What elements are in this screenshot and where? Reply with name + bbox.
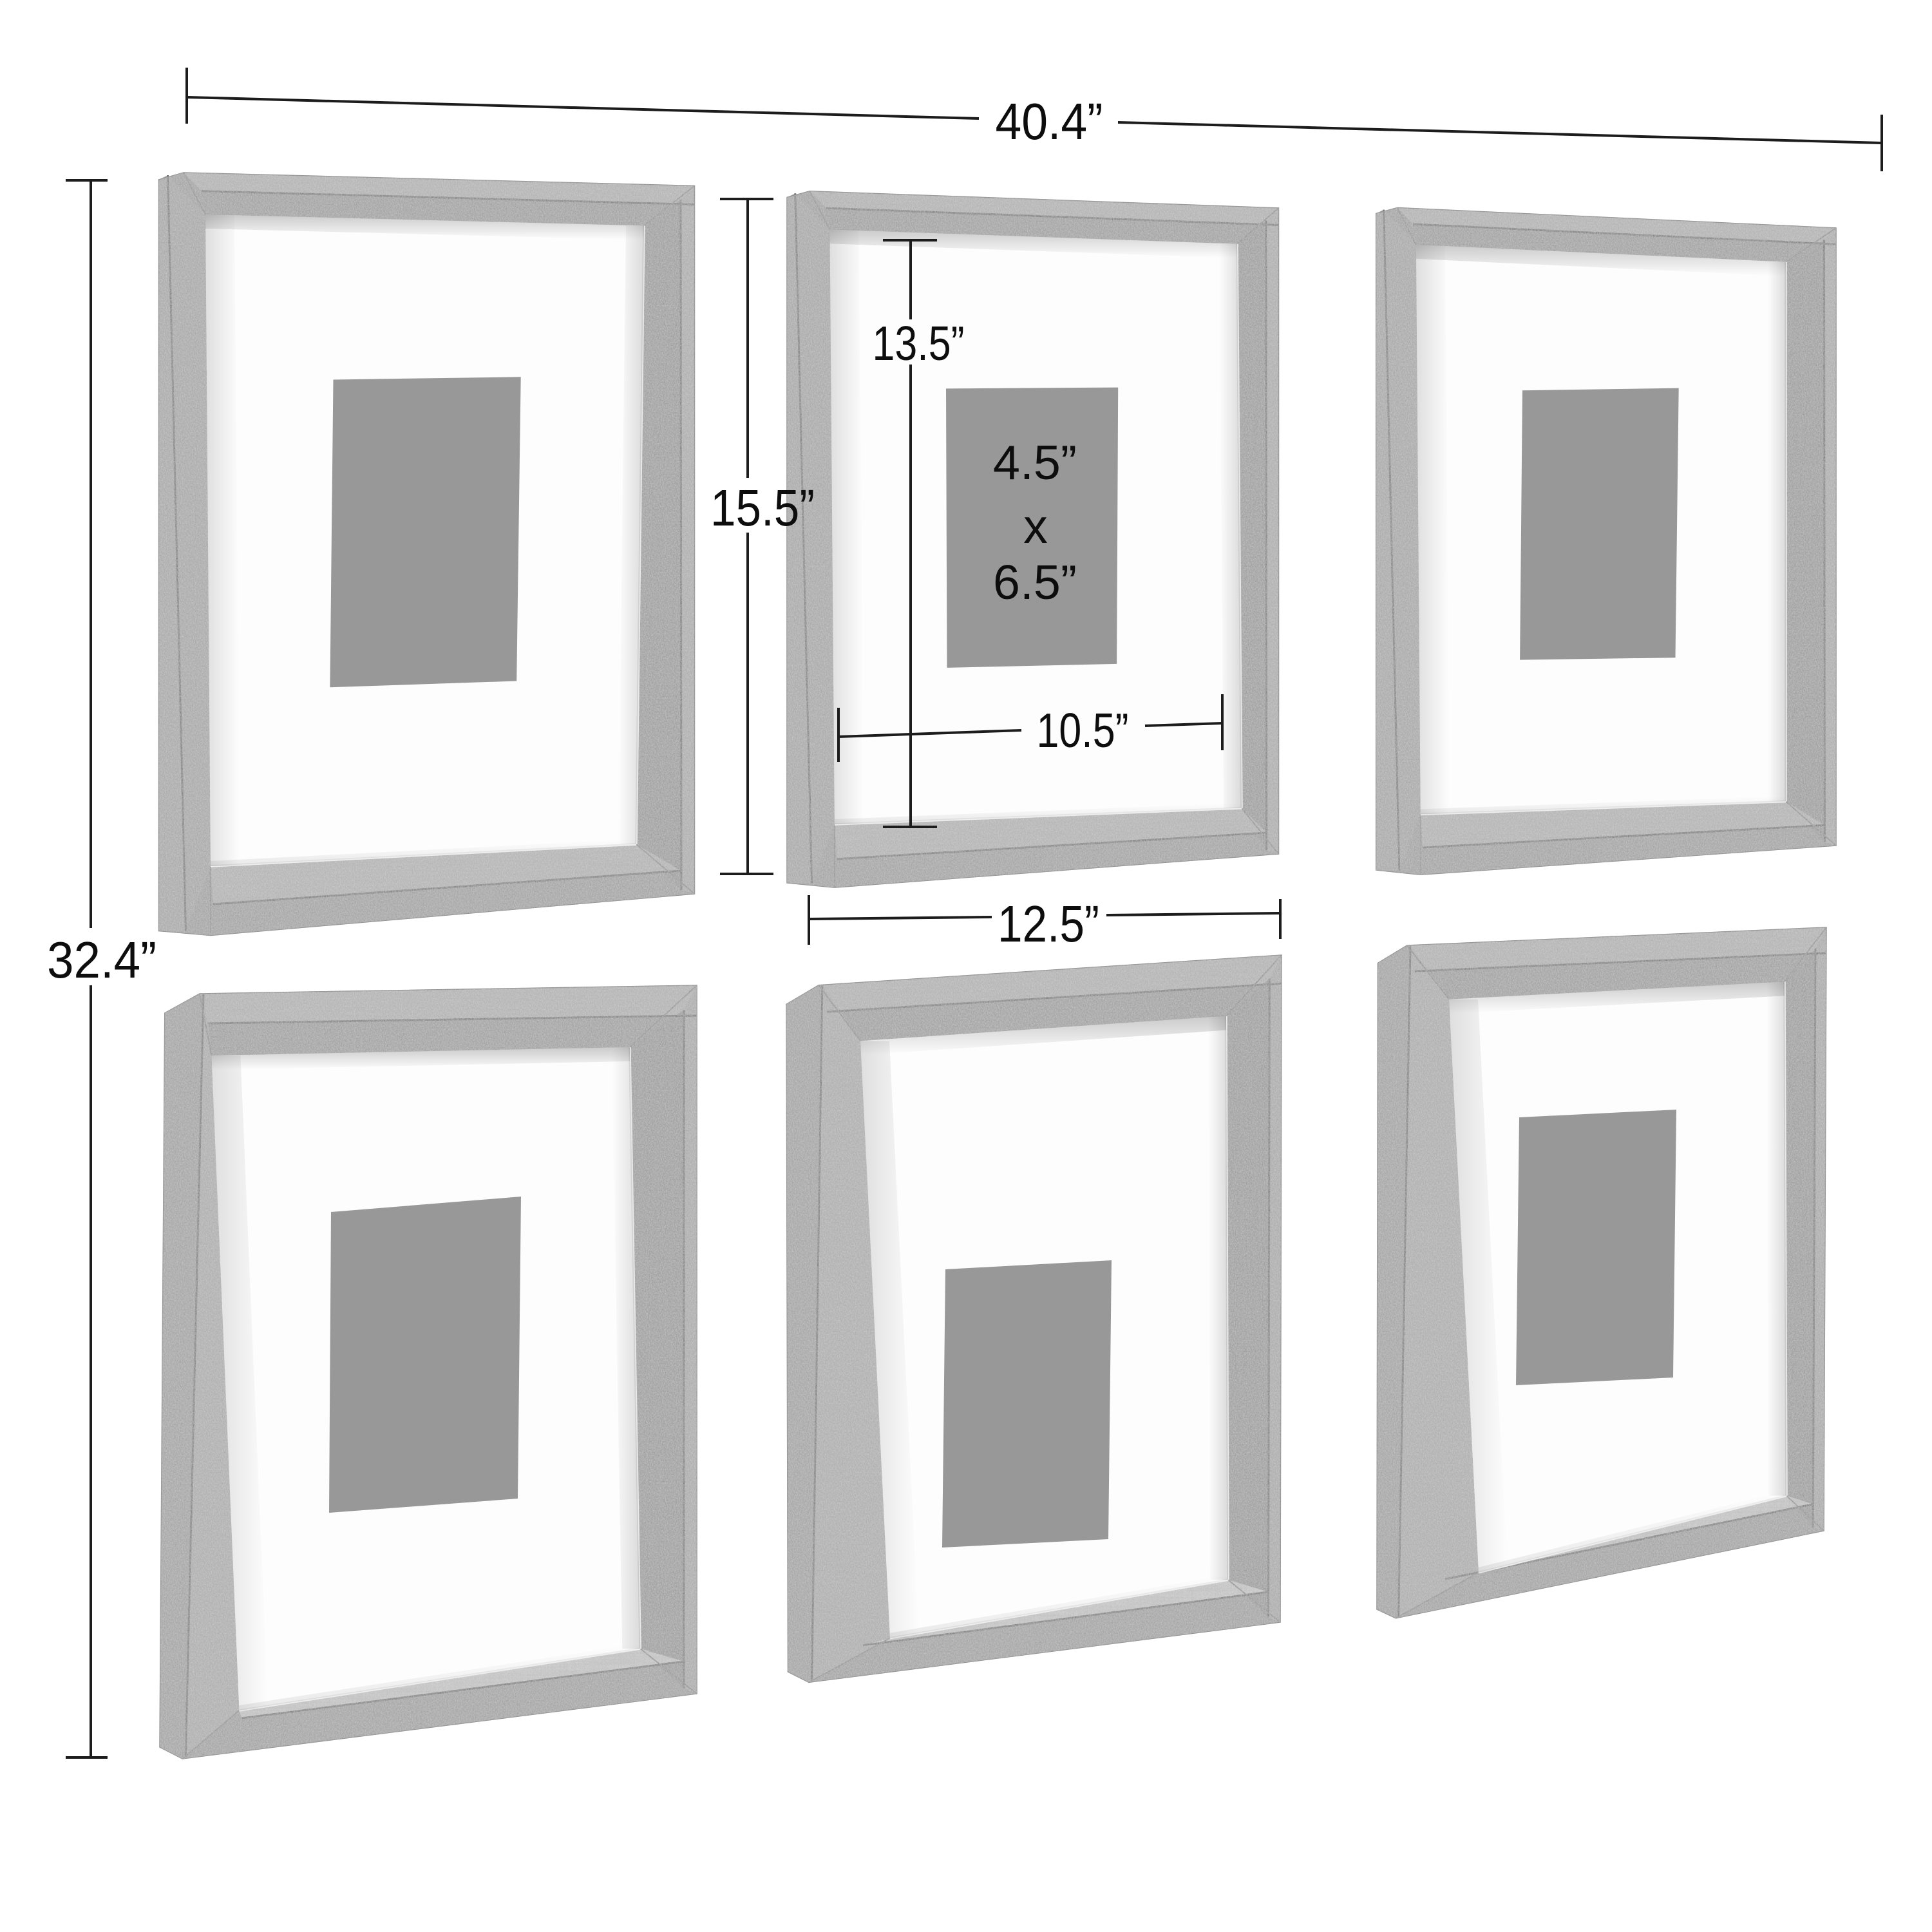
svg-text:6.5”: 6.5” (993, 555, 1077, 609)
svg-text:10.5”: 10.5” (1037, 703, 1129, 757)
svg-text:40.4”: 40.4” (996, 93, 1103, 150)
svg-text:15.5”: 15.5” (710, 479, 815, 536)
svg-text:13.5”: 13.5” (873, 316, 965, 370)
svg-text:12.5”: 12.5” (998, 895, 1099, 952)
svg-text:32.4”: 32.4” (47, 931, 156, 989)
svg-text:x: x (1023, 499, 1048, 553)
svg-text:4.5”: 4.5” (993, 435, 1077, 489)
